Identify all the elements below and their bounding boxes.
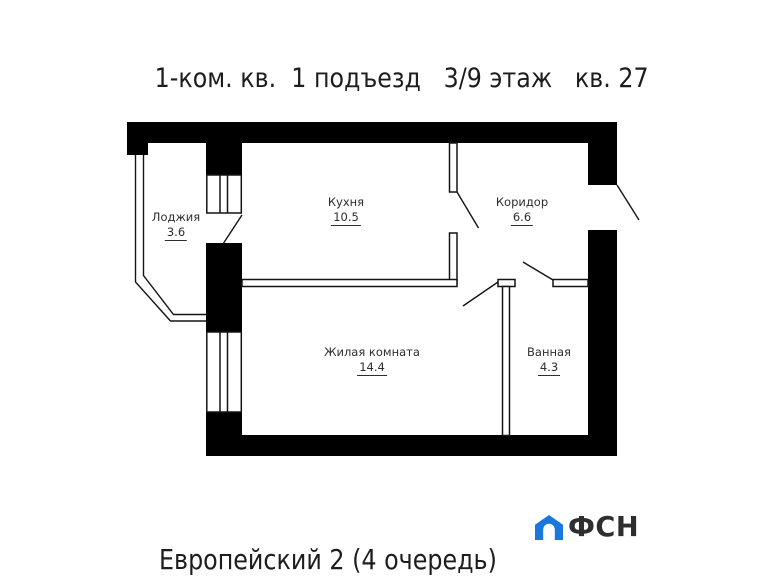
partition-kitchen-corridor-lower	[450, 233, 458, 283]
room-area: 6.6	[511, 211, 533, 226]
room-name: Ванная	[527, 346, 571, 359]
room-name: Лоджия	[152, 211, 200, 224]
partition-kitchen-living	[242, 280, 457, 287]
wall-top-left-pier	[127, 122, 148, 155]
room-name: Кухня	[328, 196, 364, 209]
room-name: Жилая комната	[324, 346, 420, 359]
wall-bottom	[206, 435, 617, 456]
bathroom-door-swing	[523, 262, 553, 280]
balcony-door-swing	[223, 215, 242, 244]
room-label-living: Жилая комната 14.4	[324, 346, 420, 376]
project-name-text: Европейский 2 (4 очередь)	[159, 543, 497, 576]
door-swings	[223, 185, 639, 306]
wall-left-seg1	[206, 143, 242, 175]
wall-right-lower	[588, 230, 617, 456]
room-area: 10.5	[331, 211, 361, 226]
logo-text: ФСН	[568, 514, 639, 540]
floor-plan-drawing	[0, 0, 768, 576]
wall-right-upper	[588, 122, 617, 185]
floorplan-page: 1-ком. кв. 1 подъезд 3/9 этаж кв. 27	[0, 0, 768, 576]
exterior-walls	[127, 122, 617, 456]
room-label-corridor: Коридор 6.6	[496, 196, 548, 226]
living-window	[207, 332, 242, 412]
room-area: 4.3	[538, 361, 560, 376]
entrance-door-swing	[617, 185, 639, 220]
project-name: Европейский 2 (4 очередь)	[123, 510, 556, 576]
living-door-swing	[463, 282, 498, 306]
interior-partitions	[242, 143, 588, 436]
partition-kitchen-corridor-upper	[450, 143, 458, 192]
room-name: Коридор	[496, 196, 548, 209]
partition-corridor-bathroom-stub	[553, 280, 588, 287]
partition-living-bathroom	[503, 287, 510, 436]
wall-left-seg2	[206, 243, 242, 332]
developer-logo: ФСН	[535, 514, 641, 540]
room-label-kitchen: Кухня 10.5	[328, 196, 364, 226]
house-icon	[535, 515, 563, 540]
room-label-loggia: Лоджия 3.6	[152, 211, 200, 241]
partition-doorjamb-cap	[498, 280, 515, 287]
room-label-bathroom: Ванная 4.3	[527, 346, 571, 376]
wall-left-seg3	[206, 412, 242, 456]
kitchen-door-swing	[457, 192, 479, 228]
wall-top	[127, 122, 617, 143]
room-area: 14.4	[357, 361, 387, 376]
room-area: 3.6	[165, 226, 187, 241]
kitchen-window	[207, 175, 242, 213]
